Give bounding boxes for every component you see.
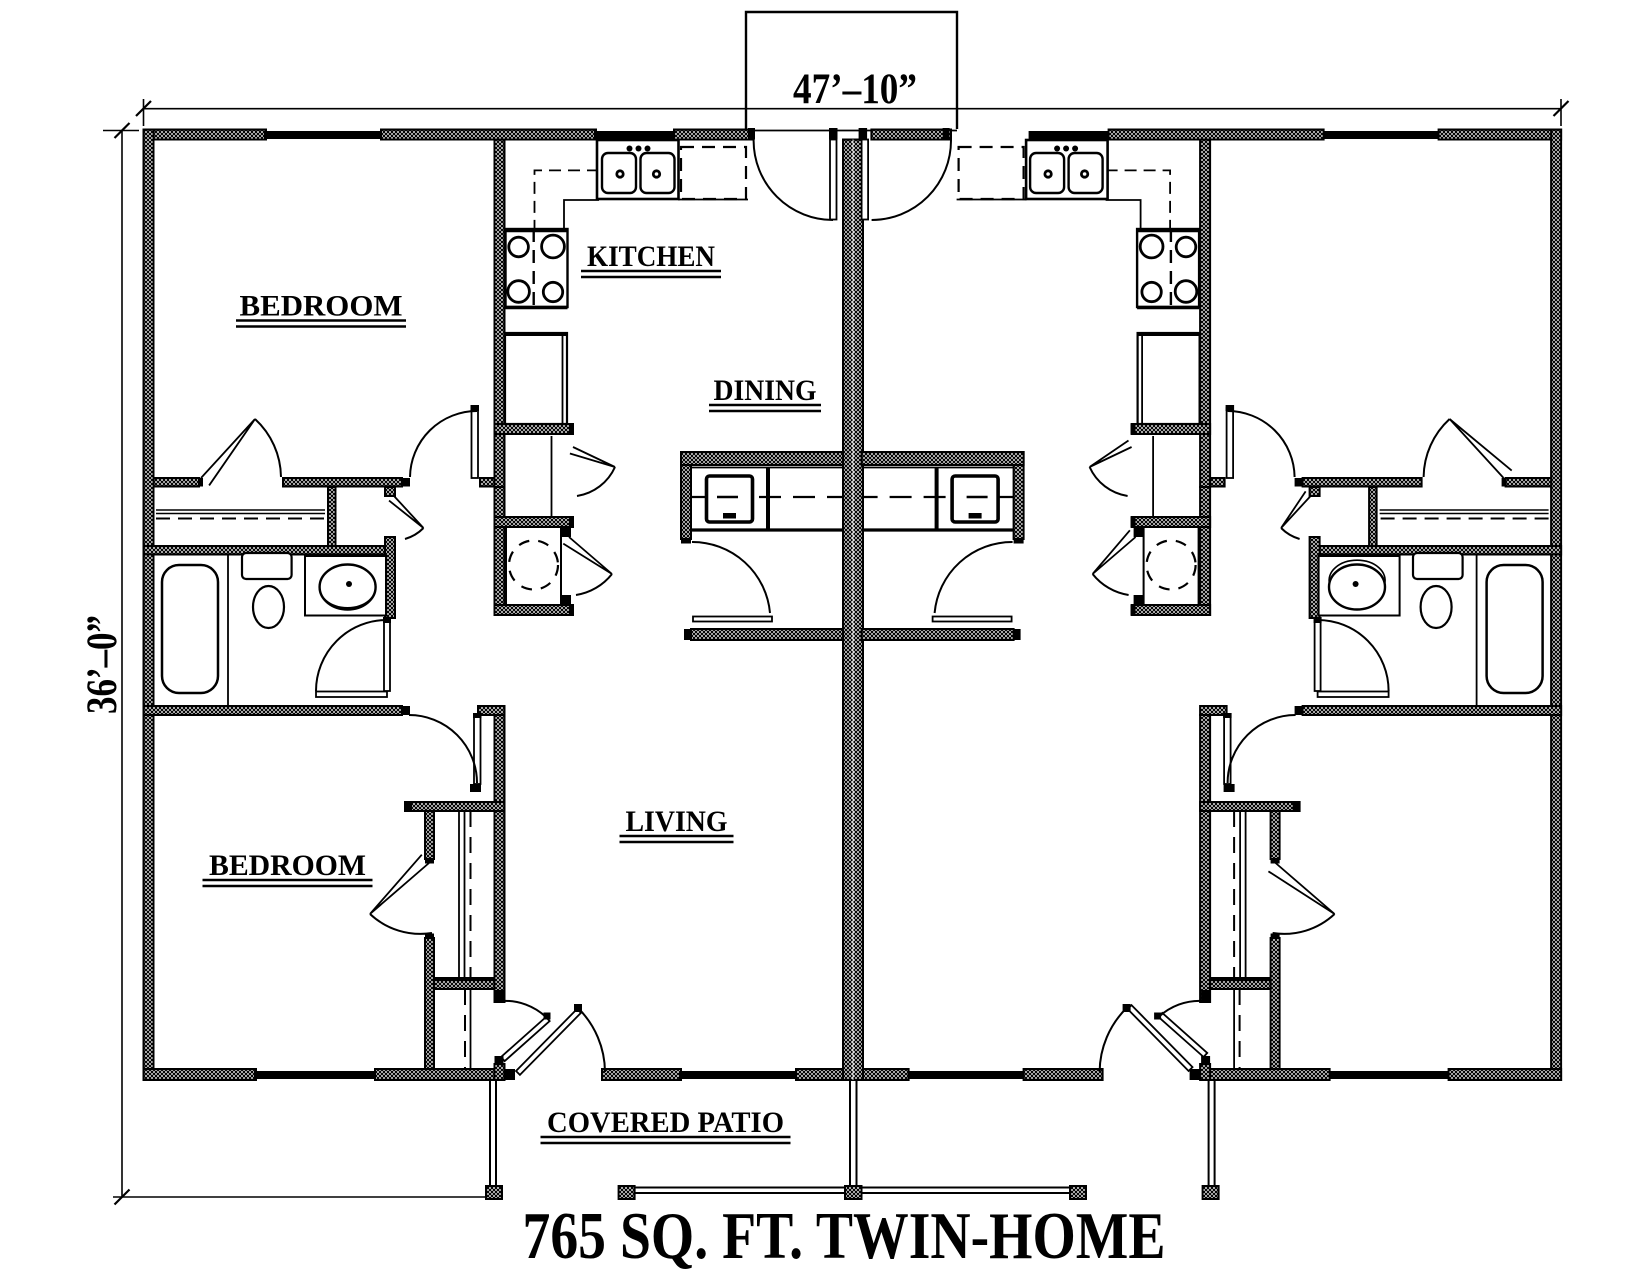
svg-text:47’–10”: 47’–10” bbox=[793, 66, 917, 113]
svg-text:LIVING: LIVING bbox=[626, 805, 728, 838]
svg-text:DINING: DINING bbox=[714, 374, 817, 407]
svg-text:765 SQ. FT. TWIN-HOME: 765 SQ. FT. TWIN-HOME bbox=[523, 1199, 1166, 1273]
svg-text:36’–0”: 36’–0” bbox=[79, 615, 126, 714]
svg-text:COVERED PATIO: COVERED PATIO bbox=[547, 1106, 784, 1139]
svg-text:BEDROOM: BEDROOM bbox=[209, 849, 366, 882]
svg-text:BEDROOM: BEDROOM bbox=[240, 290, 403, 323]
svg-text:KITCHEN: KITCHEN bbox=[587, 240, 715, 273]
